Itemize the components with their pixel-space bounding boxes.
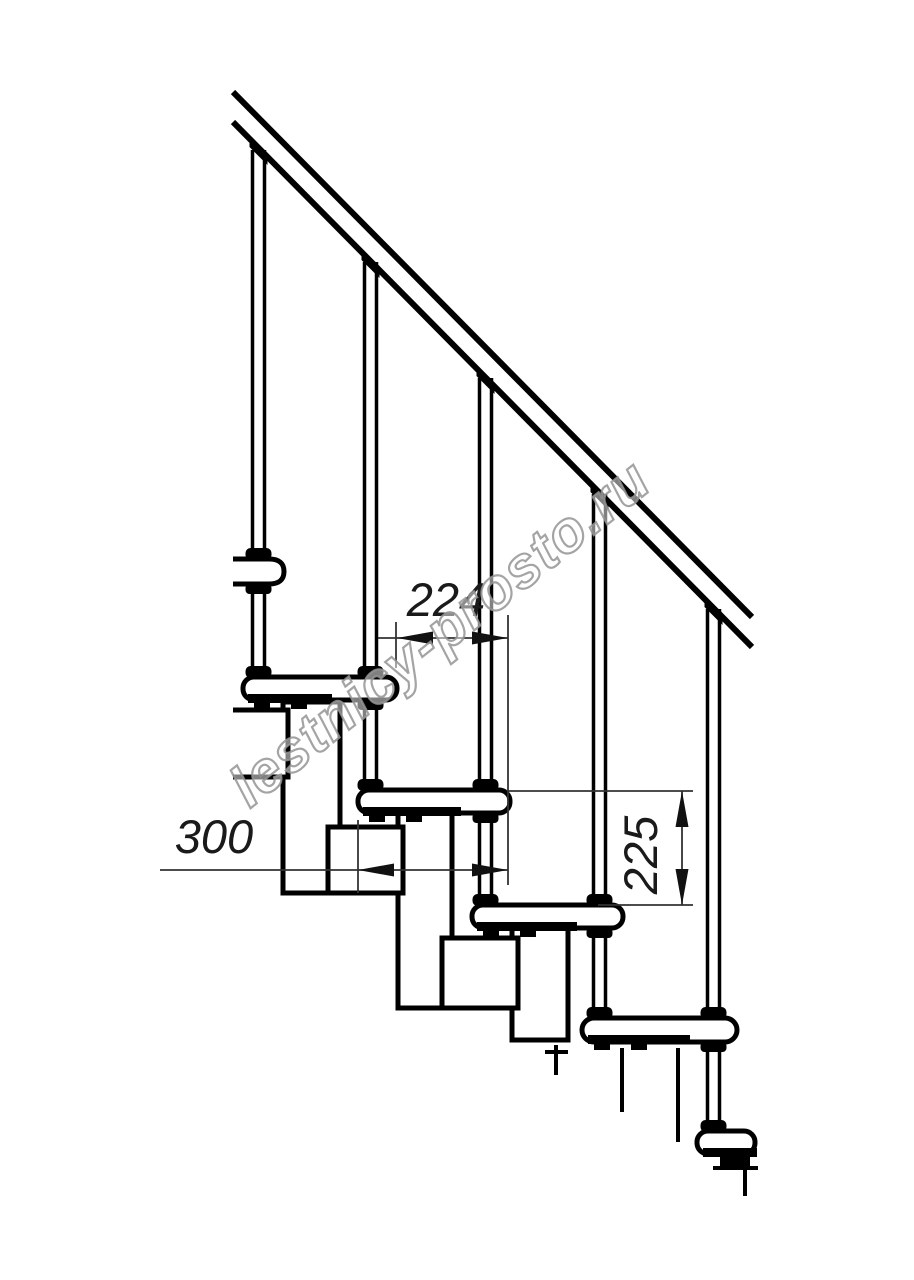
tread-4-pad (477, 922, 577, 931)
tread-3-pad (363, 807, 461, 816)
tread-4-foot-a (483, 931, 499, 937)
break-lines (545, 1045, 758, 1196)
square-connector-2 (442, 938, 518, 1008)
collar-b5-tread6 (701, 1120, 727, 1132)
tread-5-foot-b (631, 1044, 647, 1050)
baluster-5 (708, 609, 720, 1131)
baluster-4 (594, 494, 606, 1018)
tread-1-stub (233, 559, 284, 584)
collar-b4-tread5 (587, 1007, 613, 1019)
tread-5-pad (588, 1035, 690, 1044)
baluster-1 (253, 150, 265, 677)
collar-b1-tread1 (246, 548, 272, 560)
collar-b3-tread3 (473, 779, 499, 791)
baluster-4-flange (587, 928, 613, 938)
drawing-page: 224 300 225 lestnicy-prosto.ru (0, 0, 914, 1280)
tread-2-foot-a (254, 703, 270, 709)
tread-6-pad (703, 1148, 757, 1157)
dimension-tread-depth-value: 300 (175, 810, 253, 863)
tread-3-foot-a (369, 816, 385, 822)
watermark-text: lestnicy-prosto.ru (217, 446, 662, 819)
dimension-riser-height-value: 225 (614, 815, 667, 895)
collar-b5-tread5 (701, 1007, 727, 1019)
tread-4-foot-b (520, 931, 536, 937)
square-connector-1 (328, 827, 403, 893)
staircase-technical-drawing: 224 300 225 lestnicy-prosto.ru (0, 0, 914, 1280)
baluster-5-flange (701, 1042, 727, 1052)
tread-5-foot-a (594, 1044, 610, 1050)
dim-225-arrow-down (676, 869, 689, 905)
collar-b1-tread2 (246, 666, 272, 678)
collar-b2-tread3 (358, 779, 384, 791)
tread-6-foot (720, 1157, 750, 1166)
baluster-1-flange (246, 584, 272, 594)
collar-b3-tread4 (473, 894, 499, 906)
tread-3-foot-b (406, 816, 422, 822)
dimension-riser-height: 225 (508, 791, 693, 905)
baluster-3-flange (473, 813, 499, 823)
dim-225-arrow-up (676, 791, 689, 827)
